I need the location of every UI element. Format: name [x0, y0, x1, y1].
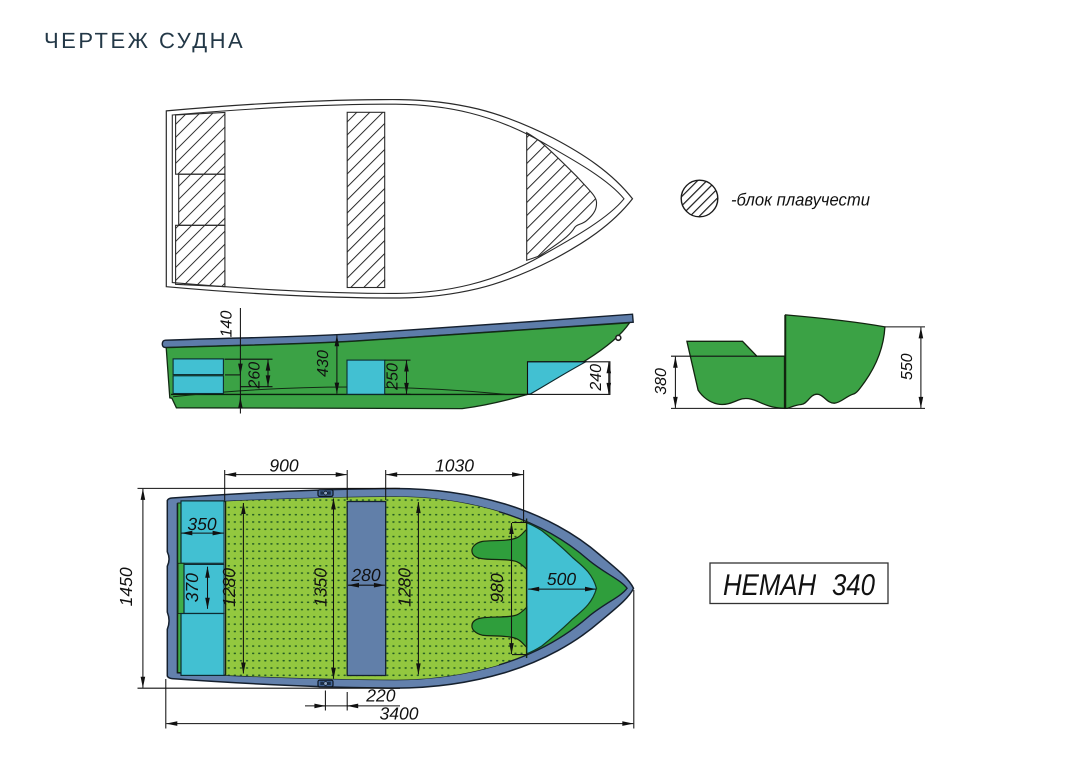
- svg-text:3400: 3400: [380, 703, 419, 723]
- svg-text:550: 550: [899, 353, 916, 380]
- svg-text:430: 430: [315, 350, 332, 377]
- svg-text:500: 500: [547, 569, 576, 589]
- svg-text:140: 140: [219, 311, 236, 338]
- svg-text:260: 260: [246, 362, 263, 390]
- svg-text:280: 280: [350, 565, 380, 585]
- svg-text:370: 370: [182, 573, 202, 602]
- svg-text:380: 380: [653, 368, 670, 395]
- svg-text:-блок плавучести: -блок плавучести: [731, 190, 870, 210]
- svg-text:250: 250: [385, 363, 402, 391]
- svg-text:980: 980: [487, 573, 507, 602]
- svg-text:1350: 1350: [310, 568, 330, 607]
- svg-text:1280: 1280: [394, 568, 414, 607]
- svg-text:НЕМАН 340: НЕМАН 340: [723, 569, 875, 602]
- svg-text:350: 350: [187, 514, 216, 534]
- svg-text:1030: 1030: [435, 455, 474, 475]
- svg-text:220: 220: [365, 685, 395, 705]
- svg-text:1280: 1280: [219, 568, 239, 607]
- svg-text:900: 900: [269, 455, 298, 475]
- svg-text:1450: 1450: [116, 567, 136, 606]
- svg-text:ЧЕРТЕЖ СУДНА: ЧЕРТЕЖ СУДНА: [44, 28, 245, 53]
- svg-text:240: 240: [588, 364, 605, 392]
